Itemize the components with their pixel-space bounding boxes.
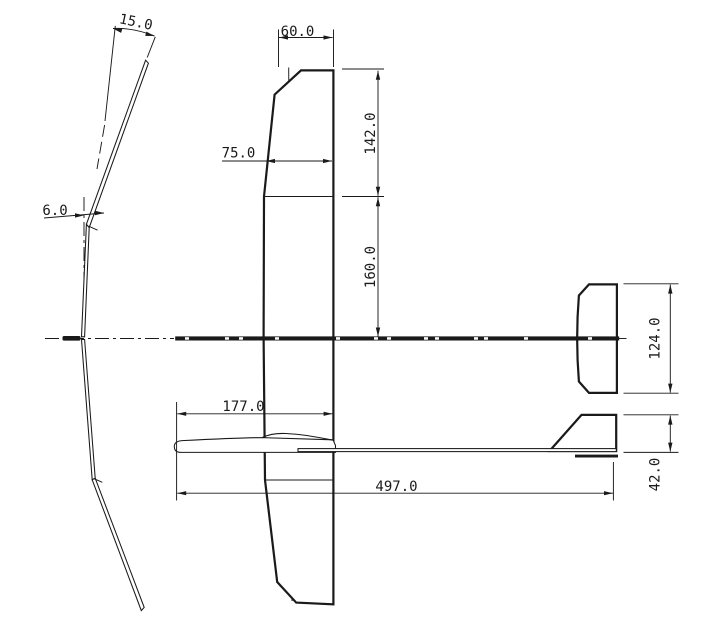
- dim-inner-panel-span: 160.0: [363, 246, 379, 288]
- drawing-canvas: 60.0 15.0 6.0 75.0 142.0 160.0 177.0 497…: [0, 0, 709, 622]
- fuselage-pod-front: [63, 336, 81, 341]
- dim-wing-root-chord: 75.0: [222, 146, 256, 162]
- stabilizer-edge-on: [575, 455, 618, 458]
- dim-fin-height: 42.0: [648, 458, 664, 492]
- dim-wing-tip-chord: 60.0: [281, 24, 315, 40]
- tail-boom-side: [298, 449, 616, 452]
- dim-outer-panel-span: 142.0: [363, 112, 379, 154]
- dim-inner-dihedral-angle: 6.0: [42, 203, 67, 219]
- dim-nose-to-wing-te: 177.0: [222, 399, 264, 415]
- glider-three-view-drawing: 60.0 15.0 6.0 75.0 142.0 160.0 177.0 497…: [0, 0, 709, 622]
- dim-overall-length: 497.0: [375, 479, 417, 495]
- dim-stabilizer-span: 124.0: [648, 317, 664, 359]
